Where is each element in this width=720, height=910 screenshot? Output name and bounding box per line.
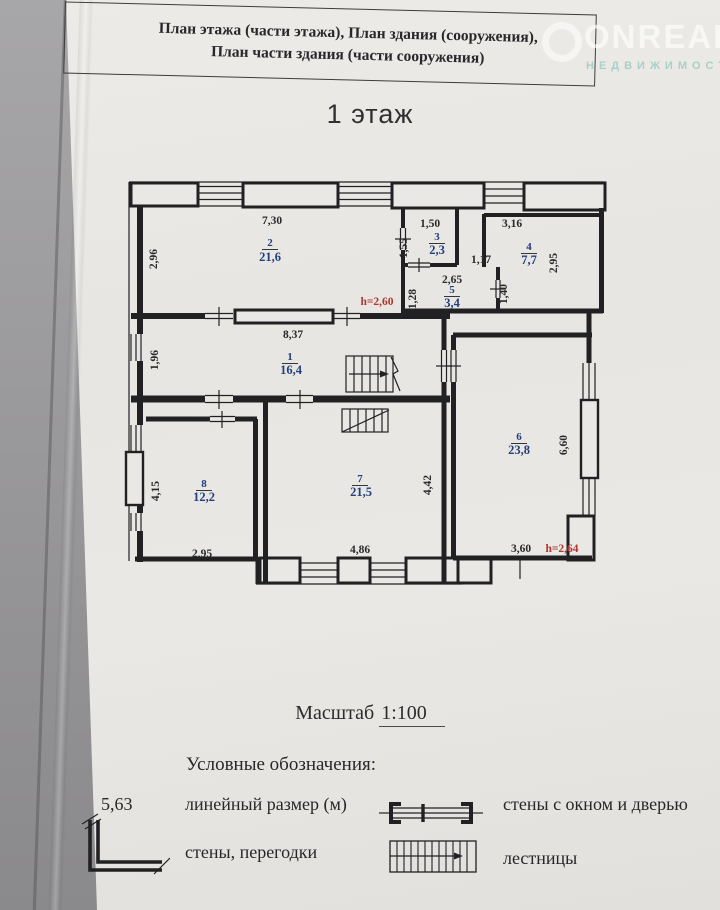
room-3-area: 2,3 bbox=[429, 243, 445, 257]
height-note-room6: h=2,64 bbox=[545, 543, 578, 555]
room-7-area: 21,5 bbox=[350, 485, 372, 499]
dimension-label: 3,60 bbox=[511, 543, 531, 555]
dimension-label: 1,55 bbox=[398, 238, 410, 258]
watermark: ONREALT НЕДВИЖИМОСТЬ bbox=[536, 14, 720, 84]
dimension-label: 6,60 bbox=[558, 435, 570, 455]
room-2-area: 21,6 bbox=[259, 250, 281, 264]
dimension-label: 1,96 bbox=[149, 350, 161, 370]
room-6-number: 6 bbox=[516, 431, 522, 443]
dimension-label: 1,40 bbox=[498, 284, 510, 304]
dimension-label: 4,86 bbox=[350, 544, 370, 556]
wall-with-window-door-symbol-icon bbox=[379, 799, 483, 827]
staircase bbox=[342, 356, 400, 432]
dimension-label: 4,42 bbox=[422, 475, 434, 495]
room-8-area: 12,2 bbox=[193, 490, 215, 504]
wall-partition-symbol-icon bbox=[78, 812, 170, 882]
legend-walls-label: стены, перегодки bbox=[185, 842, 317, 863]
room-5-area: 3,4 bbox=[444, 296, 460, 310]
floor-plan-drawing: 2 21,6 3 2,3 4 7,7 5 3,4 1 16,4 6 23,8 7… bbox=[118, 176, 618, 590]
room-labels: 2 21,6 3 2,3 4 7,7 5 3,4 1 16,4 6 23,8 7… bbox=[193, 231, 537, 504]
dimension-label: 8,37 bbox=[283, 329, 303, 341]
scanned-document-photo: План этажа (части этажа), План здания (с… bbox=[0, 0, 720, 910]
legend-stairs-label: лестницы bbox=[503, 848, 577, 869]
room-8-number: 8 bbox=[201, 478, 207, 490]
dimension-label: 1,28 bbox=[407, 289, 419, 309]
scale-label: Масштаб bbox=[295, 702, 374, 724]
dimension-label: 2,65 bbox=[442, 274, 462, 286]
onrealt-logo-icon bbox=[542, 22, 582, 62]
dimension-label: 2,96 bbox=[148, 249, 160, 269]
dimension-label: 1,50 bbox=[420, 218, 440, 230]
dimension-labels: 7,30 2,96 1,50 1,55 3,16 2,95 1,17 2,65 … bbox=[148, 215, 579, 560]
legend-title: Условные обозначения: bbox=[186, 754, 376, 776]
dimension-label: 2,95 bbox=[548, 253, 560, 273]
exterior-walls bbox=[126, 182, 605, 584]
dimension-label: 1,17 bbox=[471, 254, 491, 266]
room-4-area: 7,7 bbox=[521, 253, 537, 267]
watermark-subtitle: НЕДВИЖИМОСТЬ bbox=[586, 60, 720, 72]
dimension-label: 2,95 bbox=[192, 548, 212, 560]
watermark-brand: ONREALT bbox=[584, 18, 720, 56]
dimension-label: 3,16 bbox=[502, 218, 522, 230]
scale-value: 1:100 bbox=[379, 702, 445, 727]
dimension-label: 4,15 bbox=[150, 481, 162, 501]
room-1-area: 16,4 bbox=[280, 363, 303, 377]
title-block: План этажа (части этажа), План здания (с… bbox=[63, 2, 597, 87]
height-note-room2: h=2,60 bbox=[360, 296, 393, 308]
legend-window-door-label: стены с окном и дверью bbox=[503, 794, 688, 815]
dimension-label: 7,30 bbox=[262, 215, 282, 227]
room-7-number: 7 bbox=[357, 473, 363, 485]
scale-caption: Масштаб 1:100 bbox=[0, 702, 720, 725]
room-4-number: 4 bbox=[526, 241, 532, 253]
room-3-number: 3 bbox=[434, 231, 440, 243]
room-6-area: 23,8 bbox=[508, 443, 530, 457]
stairs-symbol-icon bbox=[389, 840, 479, 874]
floor-title: 1 этаж bbox=[0, 99, 720, 130]
room-1-number: 1 bbox=[287, 351, 293, 363]
legend-linear-label: линейный размер (м) bbox=[185, 794, 347, 815]
room-2-number: 2 bbox=[267, 237, 273, 249]
